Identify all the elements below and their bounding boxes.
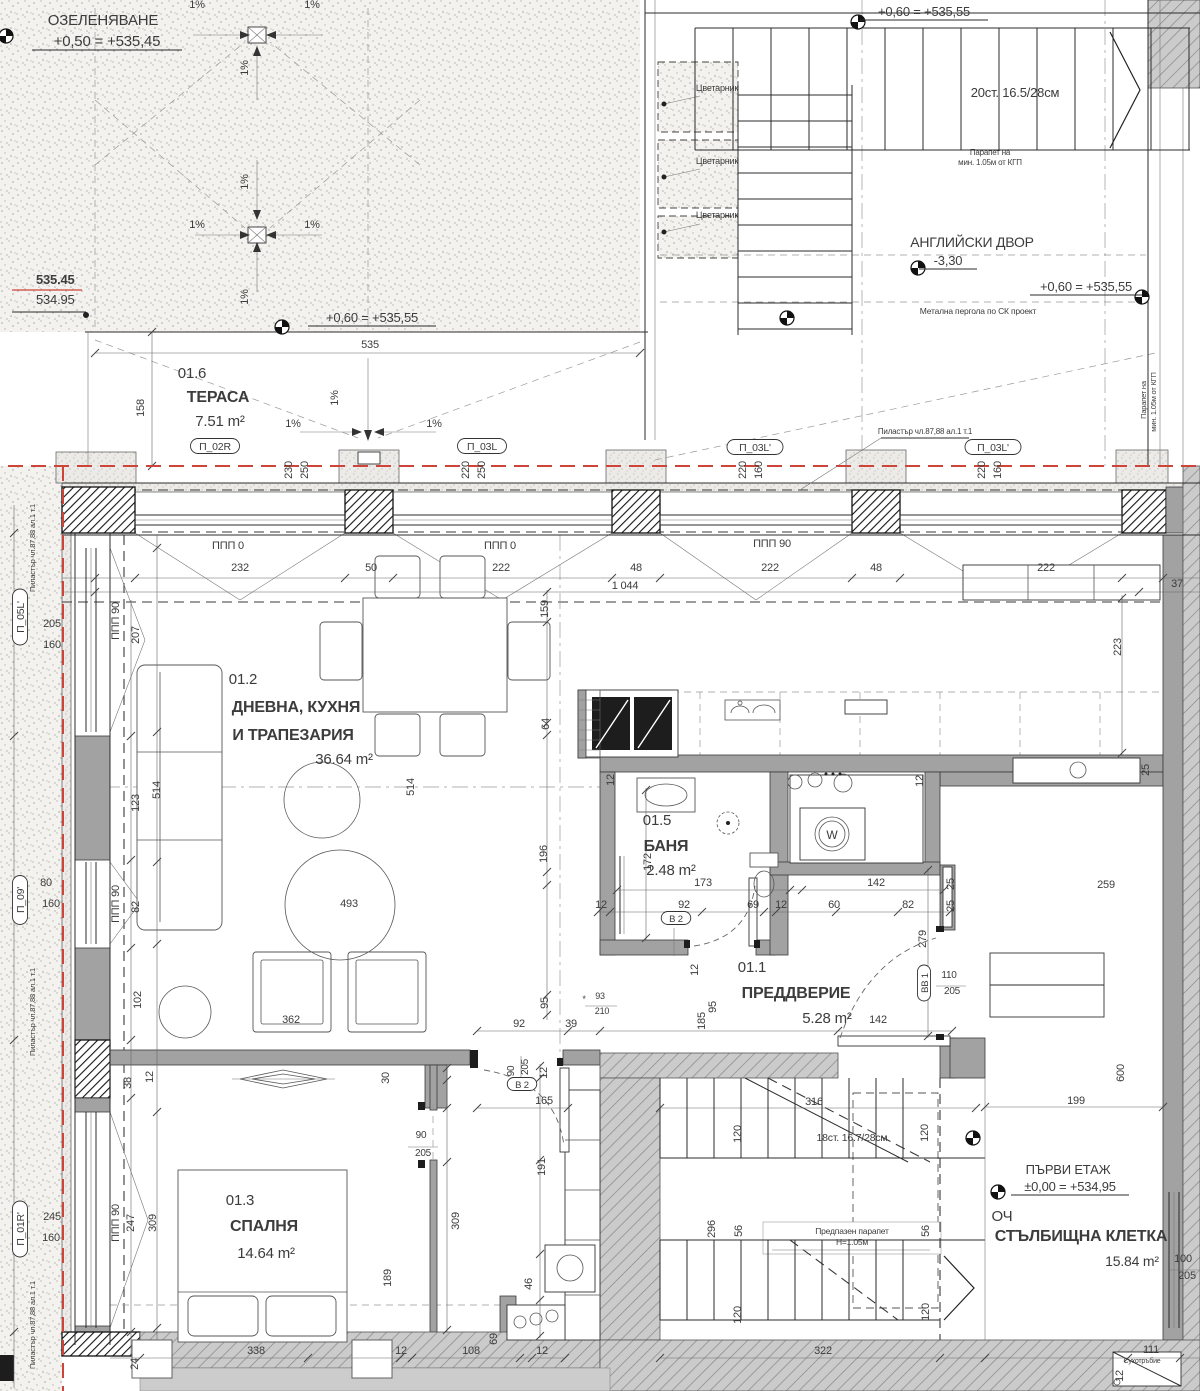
dim-label: 338: [247, 1345, 265, 1357]
level-marker-icon: [911, 261, 925, 275]
wall: [600, 1053, 838, 1078]
annotation-label: ПЪРВИ ЕТАЖ: [1026, 1162, 1111, 1177]
room-name: БАНЯ: [644, 838, 689, 855]
annotation-label: ППП 90: [110, 602, 122, 640]
level-marker-icon: [275, 320, 289, 334]
wall: [600, 1078, 660, 1340]
shape: [137, 665, 222, 930]
dim-label: 12: [144, 1071, 156, 1083]
dim-label: 64: [540, 718, 552, 730]
wall: [75, 736, 110, 860]
window-tag: П_01R': [13, 1201, 28, 1257]
dim-label: 48: [870, 562, 882, 574]
door-tag: В 2: [661, 912, 691, 926]
dim-label: 102: [132, 991, 144, 1009]
shape: [658, 62, 738, 132]
room-name: ДНЕВНА, КУХНЯ: [232, 699, 360, 716]
wall: [852, 490, 900, 533]
wall: [75, 1040, 110, 1098]
dim-label: 69: [488, 1333, 500, 1345]
shape: [838, 1036, 950, 1046]
fixture-circle: [726, 821, 730, 825]
tag-label: П_02R: [199, 441, 231, 453]
wall: [430, 1160, 437, 1332]
dim-label: 1%: [304, 0, 320, 11]
dim-label: 199: [1067, 1095, 1085, 1107]
wall: [563, 1050, 600, 1065]
shape: [375, 714, 420, 756]
shape: [56, 452, 136, 483]
window-tag: П_03L': [727, 440, 783, 455]
dim-label: 250: [476, 461, 488, 479]
shape: [363, 598, 507, 712]
dim-label: 39: [565, 1018, 577, 1030]
annotation-label: Метална пергола по СК проект: [920, 306, 1037, 316]
shape: [0, 466, 62, 1391]
dim-label: 205: [415, 1148, 432, 1159]
annotation-label: +0,50 = +535,45: [54, 33, 161, 50]
wall: [925, 772, 940, 865]
stair-direction-arrow: [1110, 32, 1140, 148]
dim-label: 12: [605, 774, 617, 786]
dim-label: 220: [976, 461, 988, 479]
dim-label: 535: [361, 339, 379, 351]
wall: [600, 940, 688, 955]
window-tag: П_05L': [13, 589, 28, 645]
annotation-label: ППП 90: [110, 885, 122, 923]
room-number: 01.1: [738, 959, 766, 976]
tag-label: В 2: [669, 914, 683, 925]
annotation-label: Пиластър чл.87,88 ал.1 т.1: [878, 427, 973, 436]
wall: [75, 1098, 110, 1112]
annotation-label: Пиластър чл.87,88 ал.1 т.1: [28, 504, 37, 592]
level-marker-icon: [0, 29, 13, 43]
shape: [418, 1102, 425, 1110]
dim-label: *: [582, 994, 586, 1004]
room-area: 2.48 m²: [646, 862, 696, 879]
shape: [943, 867, 952, 927]
dim-label: 30: [380, 1072, 392, 1084]
line: [660, 533, 756, 600]
dim-label: 362: [282, 1014, 300, 1026]
wall: [75, 948, 110, 1040]
tag-label: П_03L': [739, 442, 771, 454]
shape: [508, 622, 550, 680]
dim-label: 220: [737, 461, 749, 479]
dim-label: 46: [523, 1278, 535, 1290]
dim-label: 100: [1174, 1253, 1192, 1265]
dim-label: 196: [538, 845, 550, 863]
fixture-circle: [662, 175, 667, 180]
slope-arrowhead: [374, 428, 384, 436]
line: [240, 533, 345, 600]
shape: [963, 565, 1160, 600]
fixture-circle: [159, 986, 211, 1038]
dim-label: 82: [902, 899, 914, 911]
annotation-label: ППП 90: [110, 1204, 122, 1242]
dim-label: 210: [595, 1006, 610, 1016]
dim-label: 1%: [239, 60, 251, 76]
shape: [754, 940, 760, 948]
dim-label: 120: [920, 1303, 932, 1321]
room-number: 01.5: [643, 812, 671, 829]
dim-label: 69: [747, 899, 759, 911]
dim-label: 12: [689, 964, 701, 976]
window-tag: П_03L: [458, 439, 507, 454]
annotation-label: Парапет на: [1139, 380, 1148, 419]
dim-label: 245: [43, 1211, 61, 1223]
fixture-circle: [738, 701, 742, 705]
dim-label: 24: [129, 1358, 141, 1370]
wall: [612, 490, 660, 533]
dim-label: 222: [1037, 562, 1055, 574]
shape: [0, 1355, 14, 1381]
dim-label: 207: [130, 626, 142, 644]
dim-label: 600: [1115, 1064, 1127, 1082]
dim-label: 95: [707, 1001, 719, 1013]
dim-label: 160: [42, 898, 60, 910]
shape: [418, 1160, 425, 1168]
door-tag: ВВ 1: [918, 965, 932, 1001]
annotation-label: СТЪЛБИЩНА КЛЕТКА: [995, 1228, 1168, 1245]
dim-label: 322: [814, 1345, 832, 1357]
fixture-circle: [825, 773, 828, 776]
dim-label: 1 044: [612, 580, 639, 592]
dim-label: 205: [520, 1058, 531, 1075]
annotation-label: мин. 1.05м от КГП: [958, 158, 1022, 167]
annotation-label: Пиластър чл.87,88 ал.1 т.1: [28, 968, 37, 1056]
shape: [684, 940, 690, 948]
dim-label: 56: [733, 1225, 745, 1237]
dim-label: 142: [867, 877, 885, 889]
annotation-label: 535.45: [36, 272, 75, 287]
annotation-label: ±0,00 = +534,95: [1024, 1179, 1116, 1194]
dim-label: 1%: [239, 289, 251, 305]
shape: [750, 853, 778, 867]
fixture-circle: [83, 312, 89, 318]
kitchen-sink-bowl: [731, 706, 749, 713]
dim-label: 173: [694, 877, 712, 889]
dim-label: 1%: [239, 174, 251, 190]
dim-label: 90: [506, 1065, 517, 1076]
fixture-circle: [284, 762, 360, 838]
annotation-label: Н=1.05м: [836, 1237, 868, 1247]
dim-label: 189: [382, 1269, 394, 1287]
wall: [600, 1340, 1200, 1391]
wall: [600, 772, 615, 955]
dim-label: 165: [535, 1095, 553, 1107]
wall: [62, 1332, 140, 1356]
level-marker-icon: [1135, 290, 1149, 304]
dim-label: 1%: [189, 0, 205, 11]
annotation-label: 534.95: [36, 292, 75, 307]
shape: [266, 1296, 336, 1336]
dim-label: 160: [42, 1232, 60, 1244]
shape: [188, 1296, 258, 1336]
annotation-label: 20ст. 16.5/28см: [971, 85, 1060, 100]
dim-label: 514: [405, 778, 417, 796]
room-name: И ТРАПЕЗАРИЯ: [232, 727, 353, 744]
dim-label: 222: [761, 562, 779, 574]
wall: [1163, 535, 1183, 1340]
tag-label: П_09': [15, 887, 27, 913]
annotation-label: АНГЛИЙСКИ ДВОР: [910, 233, 1034, 250]
dim-label: 12: [395, 1345, 407, 1357]
tag-label: В 2: [515, 1080, 529, 1091]
dim-label: 48: [630, 562, 642, 574]
level-marker-icon: [780, 311, 794, 325]
line: [745, 1078, 908, 1162]
annotation-label: ППП 0: [484, 540, 516, 552]
annotation-label: ОЗЕЛЕНЯВАНЕ: [48, 12, 159, 29]
dim-label: 1%: [426, 418, 442, 430]
annotation-label: +0,60 = +535,55: [326, 310, 418, 325]
annotation-label: ППП 0: [212, 540, 244, 552]
dim-label: 309: [147, 1214, 159, 1232]
shape: [936, 926, 944, 932]
window-tag: П_02R: [191, 439, 240, 454]
dim-label: 159: [539, 600, 551, 618]
stair-direction-arrow: [944, 1256, 974, 1320]
dim-label: 25: [945, 900, 957, 912]
annotation-label: -3,30: [934, 253, 963, 268]
shape: [565, 1090, 600, 1340]
dim-label: 120: [732, 1306, 744, 1324]
annotation-label: Сухотръбие: [1123, 1357, 1160, 1365]
shape: [348, 952, 426, 1032]
dim-label: 142: [869, 1014, 887, 1026]
dim-label: 316: [805, 1096, 823, 1108]
dim-label: 25: [945, 878, 957, 890]
dim-label: 514: [151, 781, 163, 799]
dim-label: 158: [135, 399, 147, 417]
dim-label: 205: [944, 986, 961, 997]
dim-label: 108: [462, 1345, 480, 1357]
annotation-label: +0,60 = +535,55: [1040, 279, 1132, 294]
shape: [936, 1034, 944, 1040]
window-tag: П_09': [13, 876, 28, 925]
dim-label: 160: [753, 461, 765, 479]
dim-label: 120: [919, 1124, 931, 1142]
tag-label: П_03L': [977, 442, 1009, 454]
tag-label: ВВ 1: [920, 973, 931, 993]
shape: [320, 622, 362, 680]
dim-label: 230: [283, 461, 295, 479]
fixture-circle: [662, 102, 667, 107]
annotation-label: ОЧ: [992, 1208, 1013, 1225]
wall: [770, 862, 940, 875]
room-area: 14.64 m²: [237, 1245, 295, 1262]
room-number: 01.2: [229, 671, 257, 688]
shape: [845, 700, 887, 714]
dim-label: 92: [678, 899, 690, 911]
dim-label: 220: [460, 461, 472, 479]
dim-label: 1%: [285, 418, 301, 430]
annotation-label: Парапет на: [970, 148, 1011, 157]
kitchen-sink-bowl: [753, 705, 775, 713]
room-name: СПАЛНЯ: [230, 1218, 298, 1235]
dim-label: 56: [920, 1225, 932, 1237]
annotation-label: ППП 90: [753, 538, 791, 550]
room-area: 7.51 m²: [195, 413, 245, 430]
dim-label: 82: [130, 901, 142, 913]
slope-arrowhead: [352, 428, 362, 436]
annotation-label: Цветарник: [696, 156, 738, 166]
room-area: 5.28 m²: [802, 1010, 852, 1027]
tag-label: П_01R': [15, 1212, 27, 1246]
fixture-circle: [832, 773, 835, 776]
line: [502, 533, 612, 600]
dim-label: 309: [450, 1212, 462, 1230]
tag-label: П_03L: [467, 441, 497, 453]
annotation-label: W: [826, 828, 838, 842]
room-name: ТЕРАСА: [187, 389, 250, 406]
shape: [658, 216, 738, 258]
dim-label: 95: [539, 997, 551, 1009]
slope-arrowhead: [364, 430, 372, 441]
wall: [950, 1038, 985, 1078]
shape: [725, 700, 780, 720]
dim-label: 12: [536, 1345, 548, 1357]
room-area: 36.64 m²: [315, 751, 373, 768]
dim-label: 205: [43, 618, 61, 630]
dim-label: 1%: [189, 219, 205, 231]
dim-label: 222: [492, 562, 510, 574]
level-marker-icon: [966, 1131, 980, 1145]
dim-label: 279: [917, 930, 929, 948]
level-marker-icon: [991, 1185, 1005, 1199]
dim-label: 50: [365, 562, 377, 574]
dim-label: 205: [1178, 1270, 1196, 1282]
dim-label: 191: [536, 1158, 548, 1176]
dim-label: 90: [416, 1130, 427, 1141]
dim-label: 185: [696, 1012, 708, 1030]
dim-label: 1%: [329, 390, 341, 406]
shape: [470, 1050, 478, 1068]
dim-label: 247: [125, 1214, 137, 1232]
room-name: ПРЕДДВЕРИЕ: [742, 985, 851, 1002]
door-swing-arc: [694, 886, 755, 946]
dim-label: 12: [1114, 1370, 1126, 1382]
fixture-circle: [662, 230, 667, 235]
dim-label: 38: [122, 1077, 134, 1089]
dim-label: 160: [43, 639, 61, 651]
dim-label: 296: [706, 1220, 718, 1238]
dim-label: 25: [1140, 764, 1152, 776]
shape: [545, 1245, 595, 1292]
dim-label: 37: [1171, 578, 1183, 590]
annotation-label: +0,60 = +535,55: [878, 4, 970, 19]
dim-label: 110: [941, 970, 957, 981]
shape: [507, 1305, 565, 1340]
annotation-label: Цветарник: [696, 210, 738, 220]
dim-label: 12: [775, 899, 787, 911]
room-number: 01.6: [178, 365, 206, 382]
annotation-label: мин. 1.05м от КГП: [1149, 372, 1158, 431]
line: [110, 1112, 148, 1220]
dim-label: 232: [231, 562, 249, 574]
dim-label: 160: [992, 461, 1004, 479]
wall: [430, 1065, 437, 1110]
dim-label: 12: [538, 1067, 550, 1079]
annotation-label: 18ст. 16.7/28см: [817, 1132, 888, 1144]
dim-label: 223: [1112, 638, 1124, 656]
annotation-label: Пиластър чл.87,88 ал.1 т.1: [28, 1281, 37, 1369]
dim-label: 120: [732, 1125, 744, 1143]
wall: [62, 487, 135, 533]
tag-label: П_05L': [15, 601, 27, 633]
annotation-label: Цветарник: [696, 83, 738, 93]
window-tag: П_03L': [965, 440, 1021, 455]
wall: [110, 1050, 470, 1065]
room-number: 01.3: [226, 1192, 254, 1209]
level-marker-icon: [851, 15, 865, 29]
annotation-label: 15.84 m²: [1105, 1253, 1159, 1269]
dim-label: 1%: [304, 219, 320, 231]
dim-label: 493: [340, 898, 358, 910]
shape: [557, 1058, 563, 1066]
shape: [560, 1068, 569, 1152]
dim-label: 12: [595, 899, 607, 911]
line: [378, 342, 640, 438]
wall: [345, 490, 393, 533]
dim-label: 259: [1097, 879, 1115, 891]
dim-label: 60: [828, 899, 840, 911]
dim-label: 250: [299, 461, 311, 479]
wall: [1122, 490, 1166, 533]
dim-label: 123: [130, 794, 142, 812]
dim-label: 93: [595, 991, 605, 1001]
dim-label: 80: [40, 877, 52, 889]
shape: [352, 1340, 392, 1378]
floor-plan-canvas: АП.01 83.61 m² ОЗЕЛЕНЯВАНЕ+0,50 = +535,4…: [0, 0, 1200, 1391]
door-tag: В 2: [507, 1078, 537, 1092]
annotation-label: Предпазен парапет: [815, 1226, 889, 1236]
dim-label: 111: [1143, 1344, 1159, 1356]
dim-label: 12: [914, 775, 926, 787]
shape: [440, 714, 485, 756]
fixture-circle: [839, 773, 842, 776]
shape: [358, 452, 380, 464]
dim-label: 92: [513, 1018, 525, 1030]
